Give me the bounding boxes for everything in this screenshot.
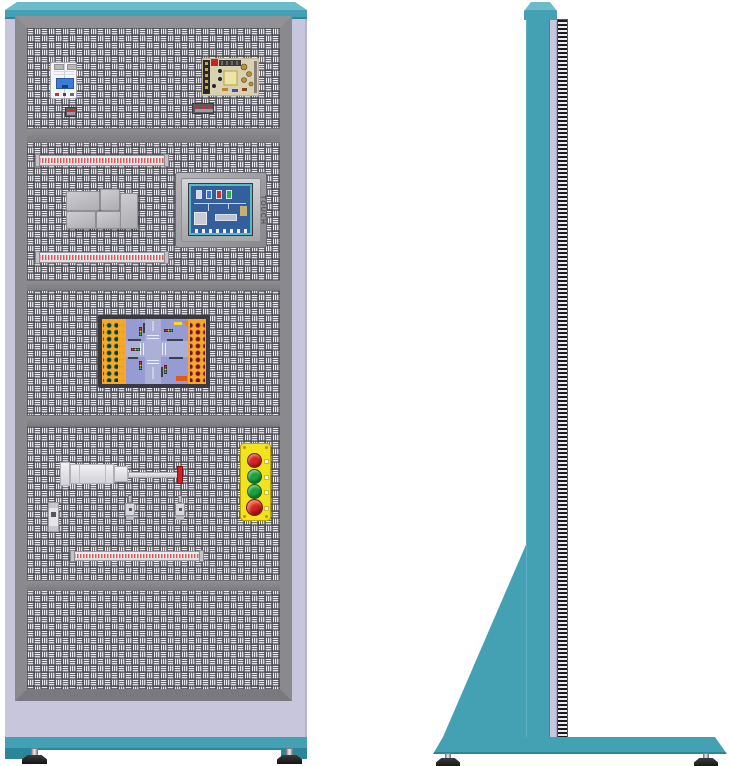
terminal-strip	[73, 551, 201, 561]
tie-rod-line	[79, 465, 80, 483]
mini-terminal-connector	[192, 103, 214, 114]
position-sensor	[125, 495, 135, 522]
push-button-station	[240, 443, 271, 521]
section-divider	[27, 280, 280, 291]
sensor-eye	[129, 508, 132, 511]
breaker-mark	[63, 93, 66, 96]
cylinder-body	[70, 464, 114, 484]
section-divider	[27, 415, 280, 427]
sensor-stem	[128, 495, 132, 503]
support-gusset	[443, 540, 528, 737]
breaker-label-line	[54, 74, 74, 75]
emergency-stop-button	[246, 499, 263, 516]
sensor-eye	[179, 508, 182, 511]
piston-rod	[128, 472, 178, 478]
connector-base	[67, 112, 75, 115]
side-panel-slots	[557, 19, 568, 739]
section-divider	[27, 580, 280, 591]
relay-module	[96, 211, 122, 229]
cylinder-head	[114, 466, 128, 482]
section-divider	[27, 128, 280, 143]
hmi-touch-label: TOUCH	[259, 195, 266, 225]
side-column	[526, 19, 550, 739]
screw	[243, 446, 246, 449]
screw	[265, 446, 268, 449]
button-label-plate	[264, 459, 269, 464]
pneumatic-cylinder	[60, 460, 188, 490]
terminal-strip	[38, 252, 166, 263]
screw	[243, 515, 246, 518]
relay-module	[120, 193, 138, 229]
button-label-plate	[264, 475, 269, 480]
hmi-graphic-pipe	[208, 203, 209, 211]
breaker-label-line	[54, 71, 74, 72]
breaker-mark	[70, 93, 74, 96]
relay-module	[100, 189, 120, 211]
breaker-indicator	[55, 93, 59, 96]
hmi-graphic-device	[240, 206, 247, 216]
green-pushbutton-2	[247, 484, 262, 499]
relay-module-group	[66, 189, 138, 231]
hmi-graphic-conveyor	[215, 214, 237, 221]
hmi-graphic-pipe	[194, 203, 246, 204]
valve-base	[49, 526, 58, 531]
solenoid-valve	[48, 502, 59, 532]
button-label-plate	[264, 506, 269, 511]
valve-port	[51, 512, 56, 517]
front-view: TOUCH	[5, 2, 307, 766]
rod-end-marker	[177, 466, 183, 484]
sensor-base	[176, 516, 184, 520]
hmi-graphic-pipe	[228, 203, 229, 209]
hmi-graphic-tank	[226, 190, 232, 199]
sensor-body	[125, 503, 135, 516]
hmi-touch-panel: TOUCH	[175, 172, 267, 248]
screw	[265, 515, 268, 518]
valve-cap	[49, 503, 58, 508]
circuit-breaker	[50, 62, 77, 99]
side-top-cap	[524, 2, 557, 20]
button-label-plate	[264, 490, 269, 495]
trainer-board	[98, 315, 210, 388]
front-base-strip	[5, 737, 307, 750]
hmi-graphic-tank	[206, 190, 212, 199]
breaker-toggle	[56, 78, 74, 89]
power-supply-unit	[202, 58, 259, 96]
side-view	[433, 2, 730, 766]
position-sensor	[175, 495, 185, 522]
sensor-stem	[178, 495, 182, 503]
cylinder-flange	[60, 462, 70, 486]
equipment-drawing: TOUCH	[0, 0, 730, 766]
hmi-graphic-buttons	[195, 229, 247, 233]
leveling-foot	[694, 758, 718, 766]
sensor-body	[175, 503, 185, 516]
tie-rod-line	[105, 465, 106, 483]
hmi-graphic-tank	[196, 190, 202, 199]
red-pushbutton	[247, 453, 262, 468]
green-pushbutton	[247, 469, 262, 484]
terminal-strip	[38, 155, 166, 166]
relay-module	[66, 211, 96, 229]
breaker-terminal	[67, 64, 77, 70]
leveling-foot	[436, 758, 460, 766]
sensor-base	[126, 516, 134, 520]
side-base-plate	[433, 737, 727, 754]
hmi-screen	[189, 184, 252, 235]
side-cabinet-edge	[550, 19, 557, 739]
hmi-graphic-keypad	[194, 212, 207, 225]
relay-module	[66, 191, 100, 211]
hmi-graphic-tank	[216, 190, 222, 199]
connector-base	[195, 109, 213, 112]
toggle-notch	[62, 85, 68, 88]
breaker-terminal	[54, 64, 64, 70]
mini-terminal-connector	[65, 107, 77, 117]
